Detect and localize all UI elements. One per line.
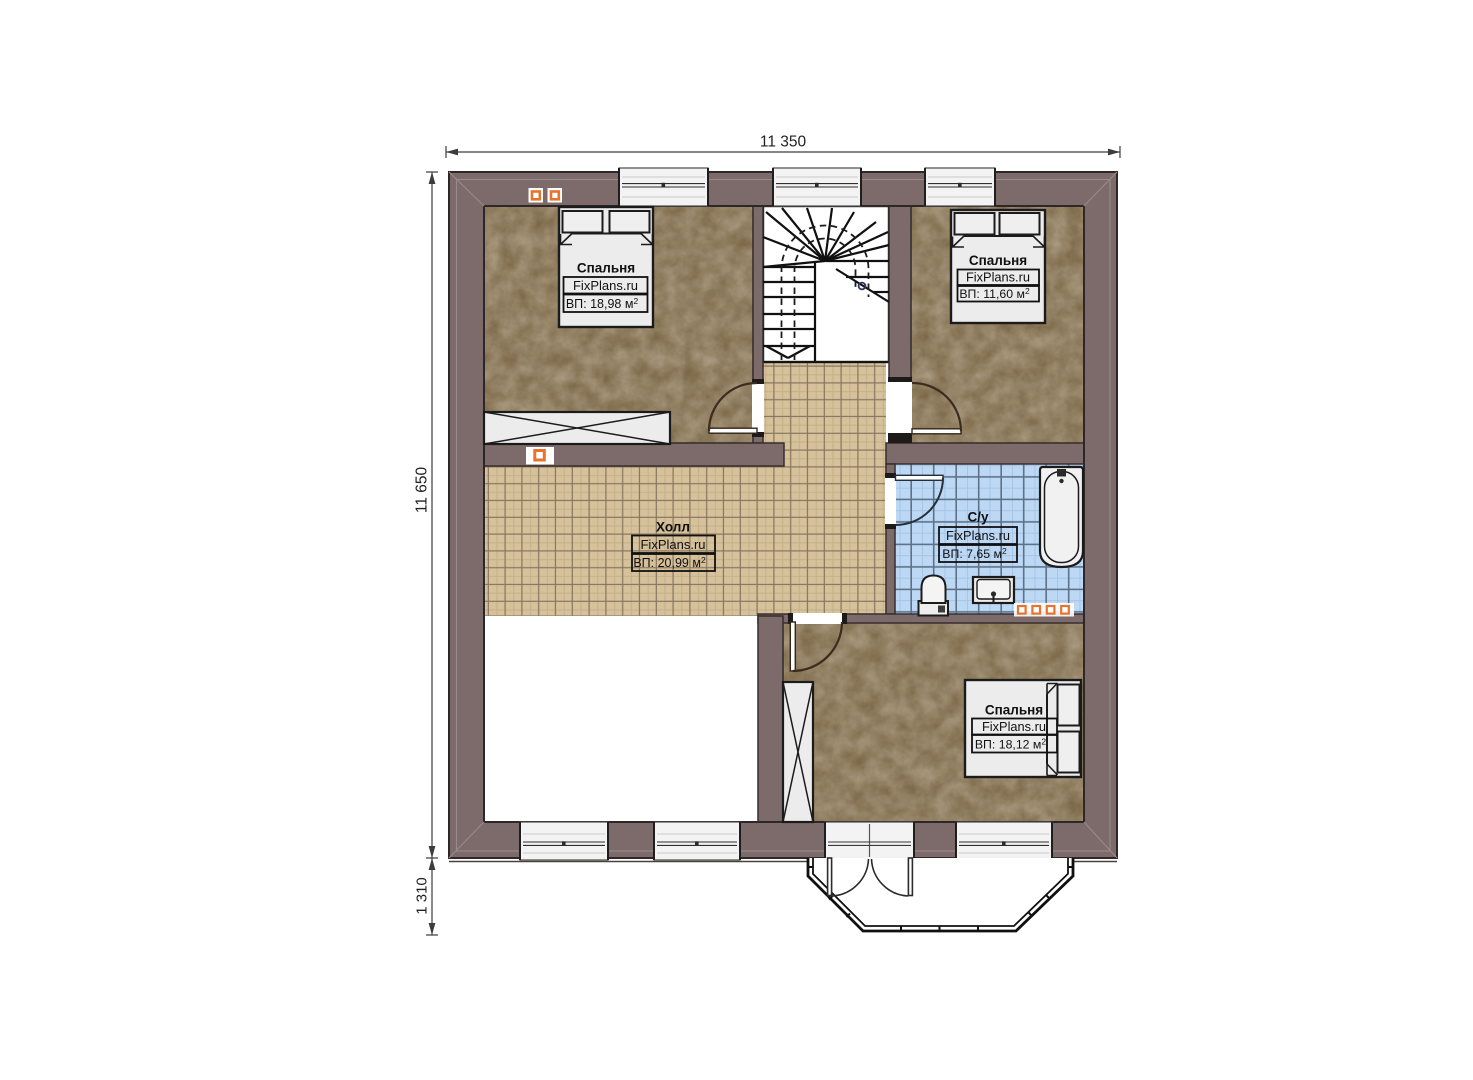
svg-text:FixPlans.ru: FixPlans.ru [640, 537, 705, 552]
svg-text:ВП: 7,65 м2: ВП: 7,65 м2 [942, 546, 1007, 561]
svg-text:FixPlans.ru: FixPlans.ru [946, 528, 1010, 543]
svg-text:FixPlans.ru: FixPlans.ru [573, 278, 638, 293]
svg-text:С/у: С/у [967, 510, 989, 525]
svg-text:Холл: Холл [656, 520, 690, 535]
svg-text:ВП: 20,99 м2: ВП: 20,99 м2 [633, 555, 706, 570]
svg-text:Спальня: Спальня [985, 703, 1043, 718]
svg-text:ВП: 11,60 м2: ВП: 11,60 м2 [959, 286, 1030, 301]
svg-text:ВП: 18,98 м2: ВП: 18,98 м2 [566, 296, 639, 311]
svg-text:11 350: 11 350 [760, 134, 807, 151]
svg-text:Спальня: Спальня [969, 253, 1027, 268]
svg-text:1 310: 1 310 [414, 877, 431, 915]
svg-text:FixPlans.ru: FixPlans.ru [966, 270, 1030, 285]
svg-text:11 650: 11 650 [414, 466, 431, 513]
svg-text:FixPlans.ru: FixPlans.ru [982, 719, 1046, 734]
svg-text:ВП: 18,12 м2: ВП: 18,12 м2 [975, 737, 1047, 752]
svg-text:Спальня: Спальня [577, 261, 635, 276]
